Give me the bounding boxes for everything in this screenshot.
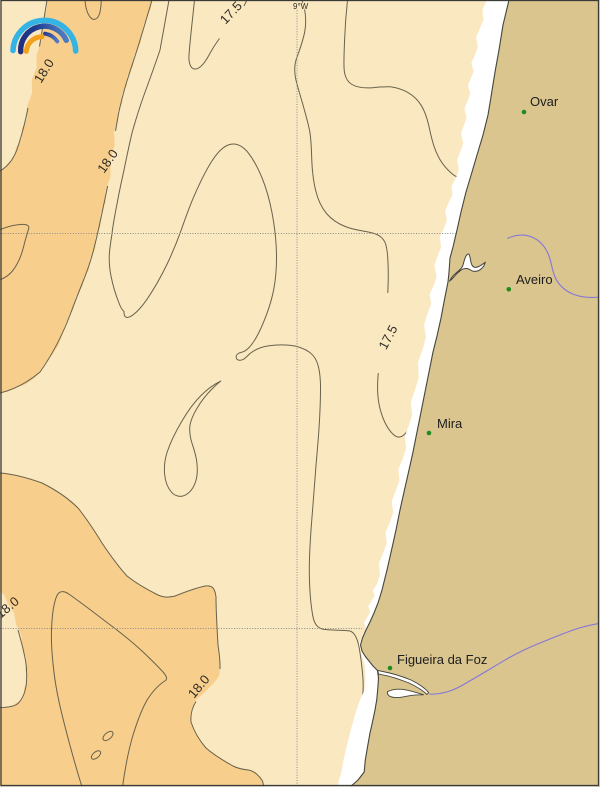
svg-text:Figueira da Foz: Figueira da Foz (397, 652, 487, 667)
svg-text:Mira: Mira (437, 416, 463, 431)
svg-text:Aveiro: Aveiro (516, 272, 553, 287)
svg-text:9°W: 9°W (293, 2, 309, 11)
svg-text:Ovar: Ovar (530, 94, 559, 109)
